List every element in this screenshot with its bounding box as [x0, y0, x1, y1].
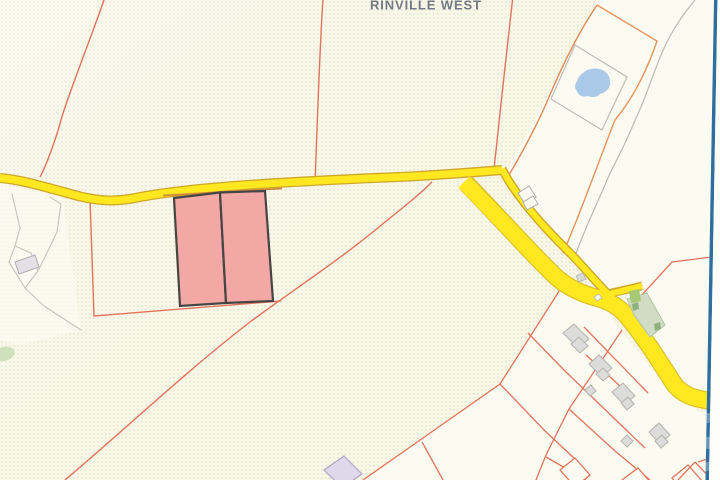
svg-text:RINVILLE WEST: RINVILLE WEST [370, 0, 483, 13]
